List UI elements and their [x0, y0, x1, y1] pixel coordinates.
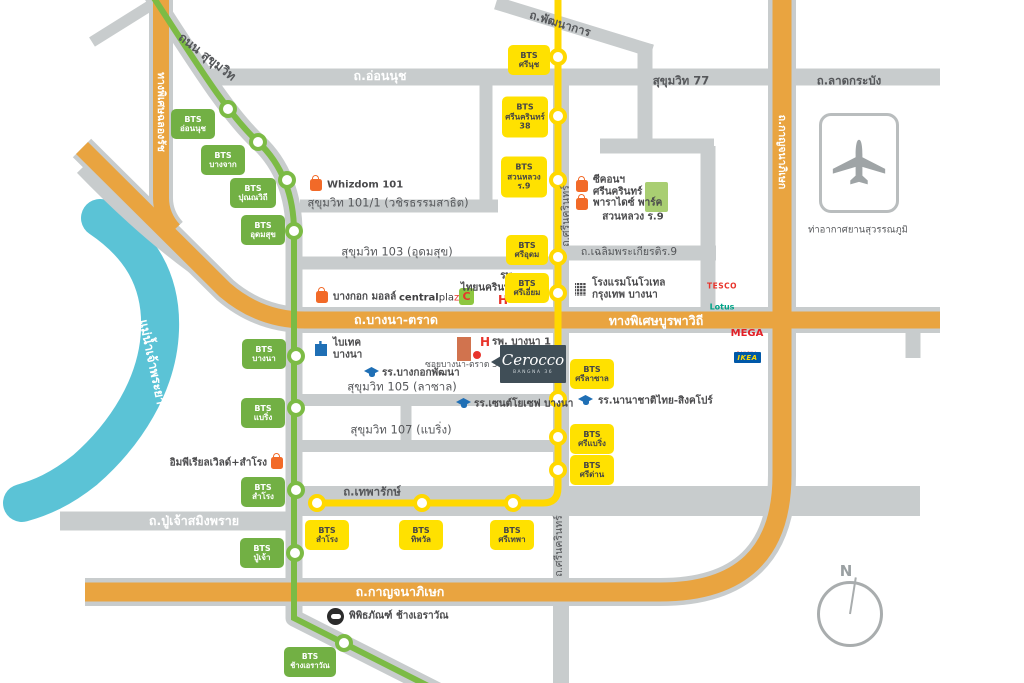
- landmark-suanluang: สวนหลวง ร.9: [602, 211, 663, 223]
- landmark-erawan-museum: พิพิธภัณฑ์ ช้างเอราวัณ: [349, 610, 449, 622]
- erawan-elephant-icon: [327, 608, 344, 625]
- label-road-chalermprakiat: ถ.เฉลิมพระเกียรติร.9: [581, 246, 677, 258]
- landmark-st-joseph-school: รร.เซนต์โยเซฟ บางนา: [474, 398, 573, 410]
- label-road-srinakarin-top: ถ.ศรีนครินทร์: [560, 185, 572, 247]
- bts-yellow-station-thipawan: BTS ทิพวัล: [399, 520, 443, 550]
- bts-yellow-station-sribearing: BTS ศรีแบริ่ง: [570, 424, 614, 454]
- bts-yellow-station-srilasalle: BTS ศรีลาซาล: [570, 359, 614, 389]
- tesco-logo-text: TESCO: [707, 283, 737, 291]
- ikea-logo: IKEA: [734, 352, 761, 363]
- landmark-seacon: ซีคอนฯ ศรีนครินทร์: [593, 175, 642, 198]
- cerocco-project-logo: Cerocco BANGNA 36: [500, 345, 566, 383]
- airport-box: [819, 113, 899, 213]
- river-chao-phraya: [22, 218, 160, 503]
- label-airport: ท่าอากาศยานสุวรรณภูมิ: [808, 226, 908, 237]
- label-road-soi101: สุขุมวิท 101/1 (วชิรธรรมสาธิต): [307, 196, 468, 209]
- shopping-bag-icon: [310, 179, 322, 191]
- shopping-bag-icon: [316, 291, 328, 303]
- landmark-imperial-world: อิมพีเรียลเวิลด์+สำโรง: [170, 457, 267, 469]
- label-road-onnut: ถ.อ่อนนุช: [354, 69, 407, 83]
- compass-north-label: N: [840, 562, 853, 580]
- centralplaza-word2: pla: [439, 292, 454, 303]
- centralplaza-word1: central: [399, 292, 439, 303]
- bts-yellow-station-srinagarindra38: BTS ศรีนครินทร์ 38: [502, 97, 548, 138]
- airplane-icon: [828, 132, 890, 194]
- bts-yellow-station-srithepha: BTS ศรีเทพา: [490, 520, 534, 550]
- label-road-soi107: สุขุมวิท 107 (แบริ่ง): [350, 423, 451, 436]
- landmark-novotel: โรงแรมโนโวเทล กรุงเทพ บางนา: [592, 278, 665, 301]
- label-expressway-chalongrat: ทางพิเศษฉลองรัช: [155, 72, 167, 152]
- label-road-soi105: สุขุมวิท 105 (ลาซาล): [347, 380, 457, 393]
- location-map: ถนน สุขุมวิท ถ.อ่อนนุช ถ.พัฒนาการ สุขุมว…: [0, 0, 1024, 683]
- landmark-bangkok-patana-school: รร.บางกอกพัฒนา: [382, 367, 460, 379]
- bts-yellow-station-sridan: BTS ศรีด่าน: [570, 455, 614, 485]
- landmark-bitec: ไบเทค บางนา: [333, 338, 362, 361]
- lotus-logo-text: Lotus: [707, 303, 737, 311]
- label-expressway-buraphawithi: ทางพิเศษบูรพาวิถี: [609, 314, 704, 328]
- bts-green-station-onnut: BTS อ่อนนุช: [171, 109, 215, 139]
- landmark-whizdom: Whizdom 101: [327, 179, 403, 191]
- bts-yellow-station-srinut: BTS ศรีนุช: [508, 45, 550, 75]
- project-building-icon: [457, 337, 471, 361]
- label-road-kanchana-horizontal: ถ.กาญจนาภิเษก: [356, 585, 445, 599]
- label-road-theparak: ถ.เทพารักษ์: [343, 485, 401, 498]
- bts-green-station-bangna: BTS บางนา: [242, 339, 286, 369]
- bts-yellow-station-suanluang: BTS สวนหลวง ร.9: [501, 157, 547, 198]
- label-road-srinakarin-bottom: ถ.ศรีนครินทร์: [553, 515, 565, 577]
- bts-green-station-changerawan: BTS ช้างเอราวัณ: [284, 647, 336, 677]
- label-road-puchao: ถ.ปู่เจ้าสมิงพราย: [149, 514, 239, 528]
- bts-yellow-station-sriudom: BTS ศรีอุดม: [506, 235, 548, 265]
- shopping-bag-icon: [576, 198, 588, 210]
- bts-green-station-samrong: BTS สำโรง: [241, 477, 285, 507]
- landmark-thai-singapore-school: รร.นานาชาติไทย-สิงคโปร์: [598, 395, 713, 407]
- hospital-h-icon: H: [480, 335, 490, 349]
- cerocco-logo-subtitle: BANGNA 36: [513, 370, 553, 375]
- school-cap-icon: [456, 398, 471, 409]
- shopping-bag-icon: [271, 457, 283, 469]
- bts-yellow-station-sriiam: BTS ศรีเอี่ยม: [505, 273, 549, 303]
- shopping-bag-icon: [576, 180, 588, 192]
- landmark-centralplaza: centralplaza: [399, 290, 465, 304]
- bts-green-station-udomsuk: BTS อุดมสุข: [241, 215, 285, 245]
- project-location-dot: [473, 351, 481, 359]
- label-road-bangnatrat: ถ.บางนา-ตราด: [354, 313, 438, 327]
- bts-green-station-punnawithi: BTS ปุณณวิถี: [230, 178, 276, 208]
- school-cap-icon: [364, 367, 379, 378]
- school-cap-icon: [578, 395, 593, 406]
- label-road-soi103: สุขุมวิท 103 (อุดมสุข): [341, 245, 453, 258]
- bts-green-station-bangchak: BTS บางจาก: [201, 145, 245, 175]
- bts-yellow-station-samrong: BTS สำโรง: [305, 520, 349, 550]
- label-road-latkrabang: ถ.ลาดกระบัง: [817, 74, 882, 87]
- landmark-paradise-park: พาราไดซ์ พาร์ค: [593, 197, 662, 209]
- hotel-building-icon: [575, 283, 586, 296]
- mega-logo-text: MEGA: [731, 329, 764, 339]
- label-road-kanchana-vertical: ถ.กาญจนาภิเษก: [776, 115, 788, 190]
- landmark-bangkok-mall: บางกอก มอลล์: [333, 291, 396, 303]
- label-road-sukhumvit77: สุขุมวิท 77: [653, 74, 710, 87]
- bts-green-station-bearing: BTS แบริ่ง: [241, 398, 285, 428]
- cerocco-logo-text: Cerocco: [502, 353, 564, 368]
- bts-green-station-puchao: BTS ปู่เจ้า: [240, 538, 284, 568]
